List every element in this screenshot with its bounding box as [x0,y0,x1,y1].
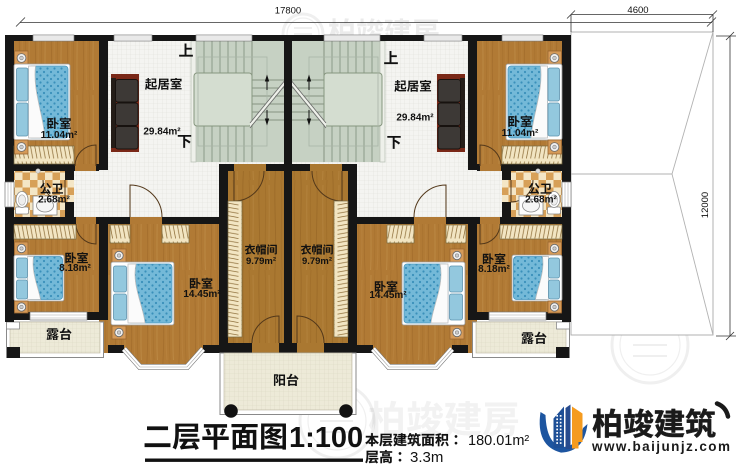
svg-text:11.04m²: 11.04m² [41,130,78,141]
svg-text:11.04m²: 11.04m² [502,128,539,139]
svg-text:3.3m: 3.3m [410,449,443,466]
svg-text:14.45m²: 14.45m² [183,289,221,300]
svg-text:14.45m²: 14.45m² [369,290,407,301]
svg-text:2.68m²: 2.68m² [38,195,70,206]
svg-text:4600: 4600 [627,5,648,16]
svg-text:8.18m²: 8.18m² [59,263,91,274]
svg-text:9.79m²: 9.79m² [246,256,276,267]
svg-text:12000: 12000 [700,192,711,218]
svg-text:29.84m²: 29.84m² [396,113,434,124]
svg-text:29.84m²: 29.84m² [143,127,181,138]
svg-text:www.baijunjz.com: www.baijunjz.com [591,439,730,454]
svg-text:1:100: 1:100 [289,422,363,454]
svg-text:17800: 17800 [275,6,301,17]
svg-text:9.79m²: 9.79m² [302,256,332,267]
svg-text:2.68m²: 2.68m² [525,195,557,206]
svg-text:180.01m²: 180.01m² [468,433,529,449]
svg-text:8.18m²: 8.18m² [478,264,510,275]
